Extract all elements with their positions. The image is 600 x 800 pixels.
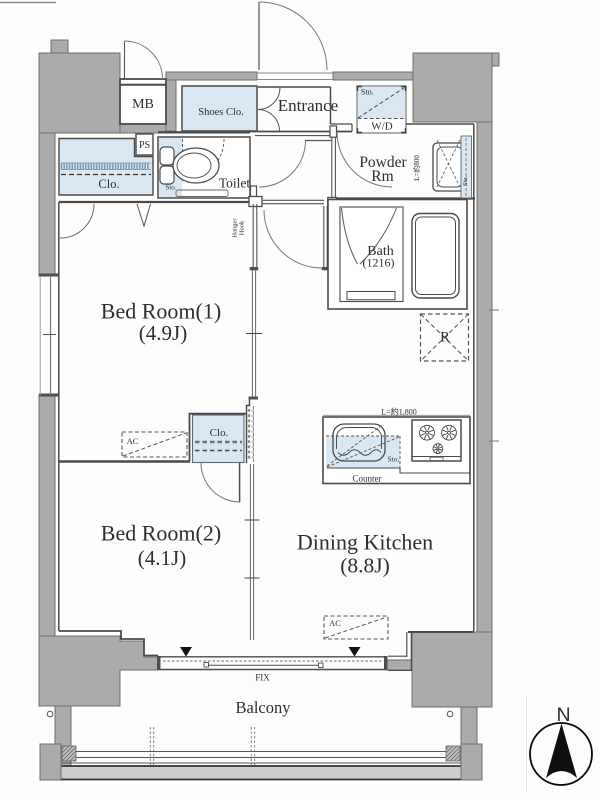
svg-text:(4.1J): (4.1J)	[138, 546, 186, 570]
svg-text:AC: AC	[127, 436, 139, 446]
svg-text:N: N	[556, 704, 570, 726]
svg-text:Balcony: Balcony	[236, 698, 292, 717]
svg-text:Dining Kitchen: Dining Kitchen	[297, 530, 433, 555]
svg-text:Toilet: Toilet	[219, 176, 251, 191]
svg-text:(8.8J): (8.8J)	[340, 554, 390, 578]
svg-text:L=約800: L=約800	[412, 155, 421, 181]
svg-text:Sto.: Sto.	[361, 88, 374, 97]
svg-text:PS: PS	[139, 140, 150, 151]
svg-text:R: R	[440, 330, 450, 346]
svg-text:MB: MB	[132, 97, 154, 112]
svg-text:Bed Room(1): Bed Room(1)	[101, 299, 221, 324]
svg-text:Hook: Hook	[239, 220, 246, 235]
svg-text:AC: AC	[329, 618, 341, 628]
svg-text:Clo.: Clo.	[210, 427, 229, 439]
svg-text:Entrance: Entrance	[278, 96, 338, 115]
svg-text:(4.9J): (4.9J)	[139, 321, 187, 345]
svg-text:Sto.: Sto.	[388, 455, 400, 464]
svg-text:W/D: W/D	[371, 121, 392, 133]
svg-text:L=約1,800: L=約1,800	[381, 407, 416, 417]
svg-text:Sto.: Sto.	[165, 184, 176, 192]
svg-text:Bed Room(2): Bed Room(2)	[101, 521, 221, 546]
svg-text:Rm: Rm	[371, 168, 393, 185]
svg-text:Shoes Clo.: Shoes Clo.	[198, 107, 244, 118]
svg-text:(1216): (1216)	[363, 256, 395, 270]
svg-text:FIX: FIX	[255, 673, 270, 683]
svg-text:Hanger: Hanger	[232, 218, 239, 238]
svg-text:Counter: Counter	[353, 474, 382, 484]
svg-text:Clo.: Clo.	[98, 177, 119, 191]
svg-text:Sto.: Sto.	[462, 175, 469, 186]
